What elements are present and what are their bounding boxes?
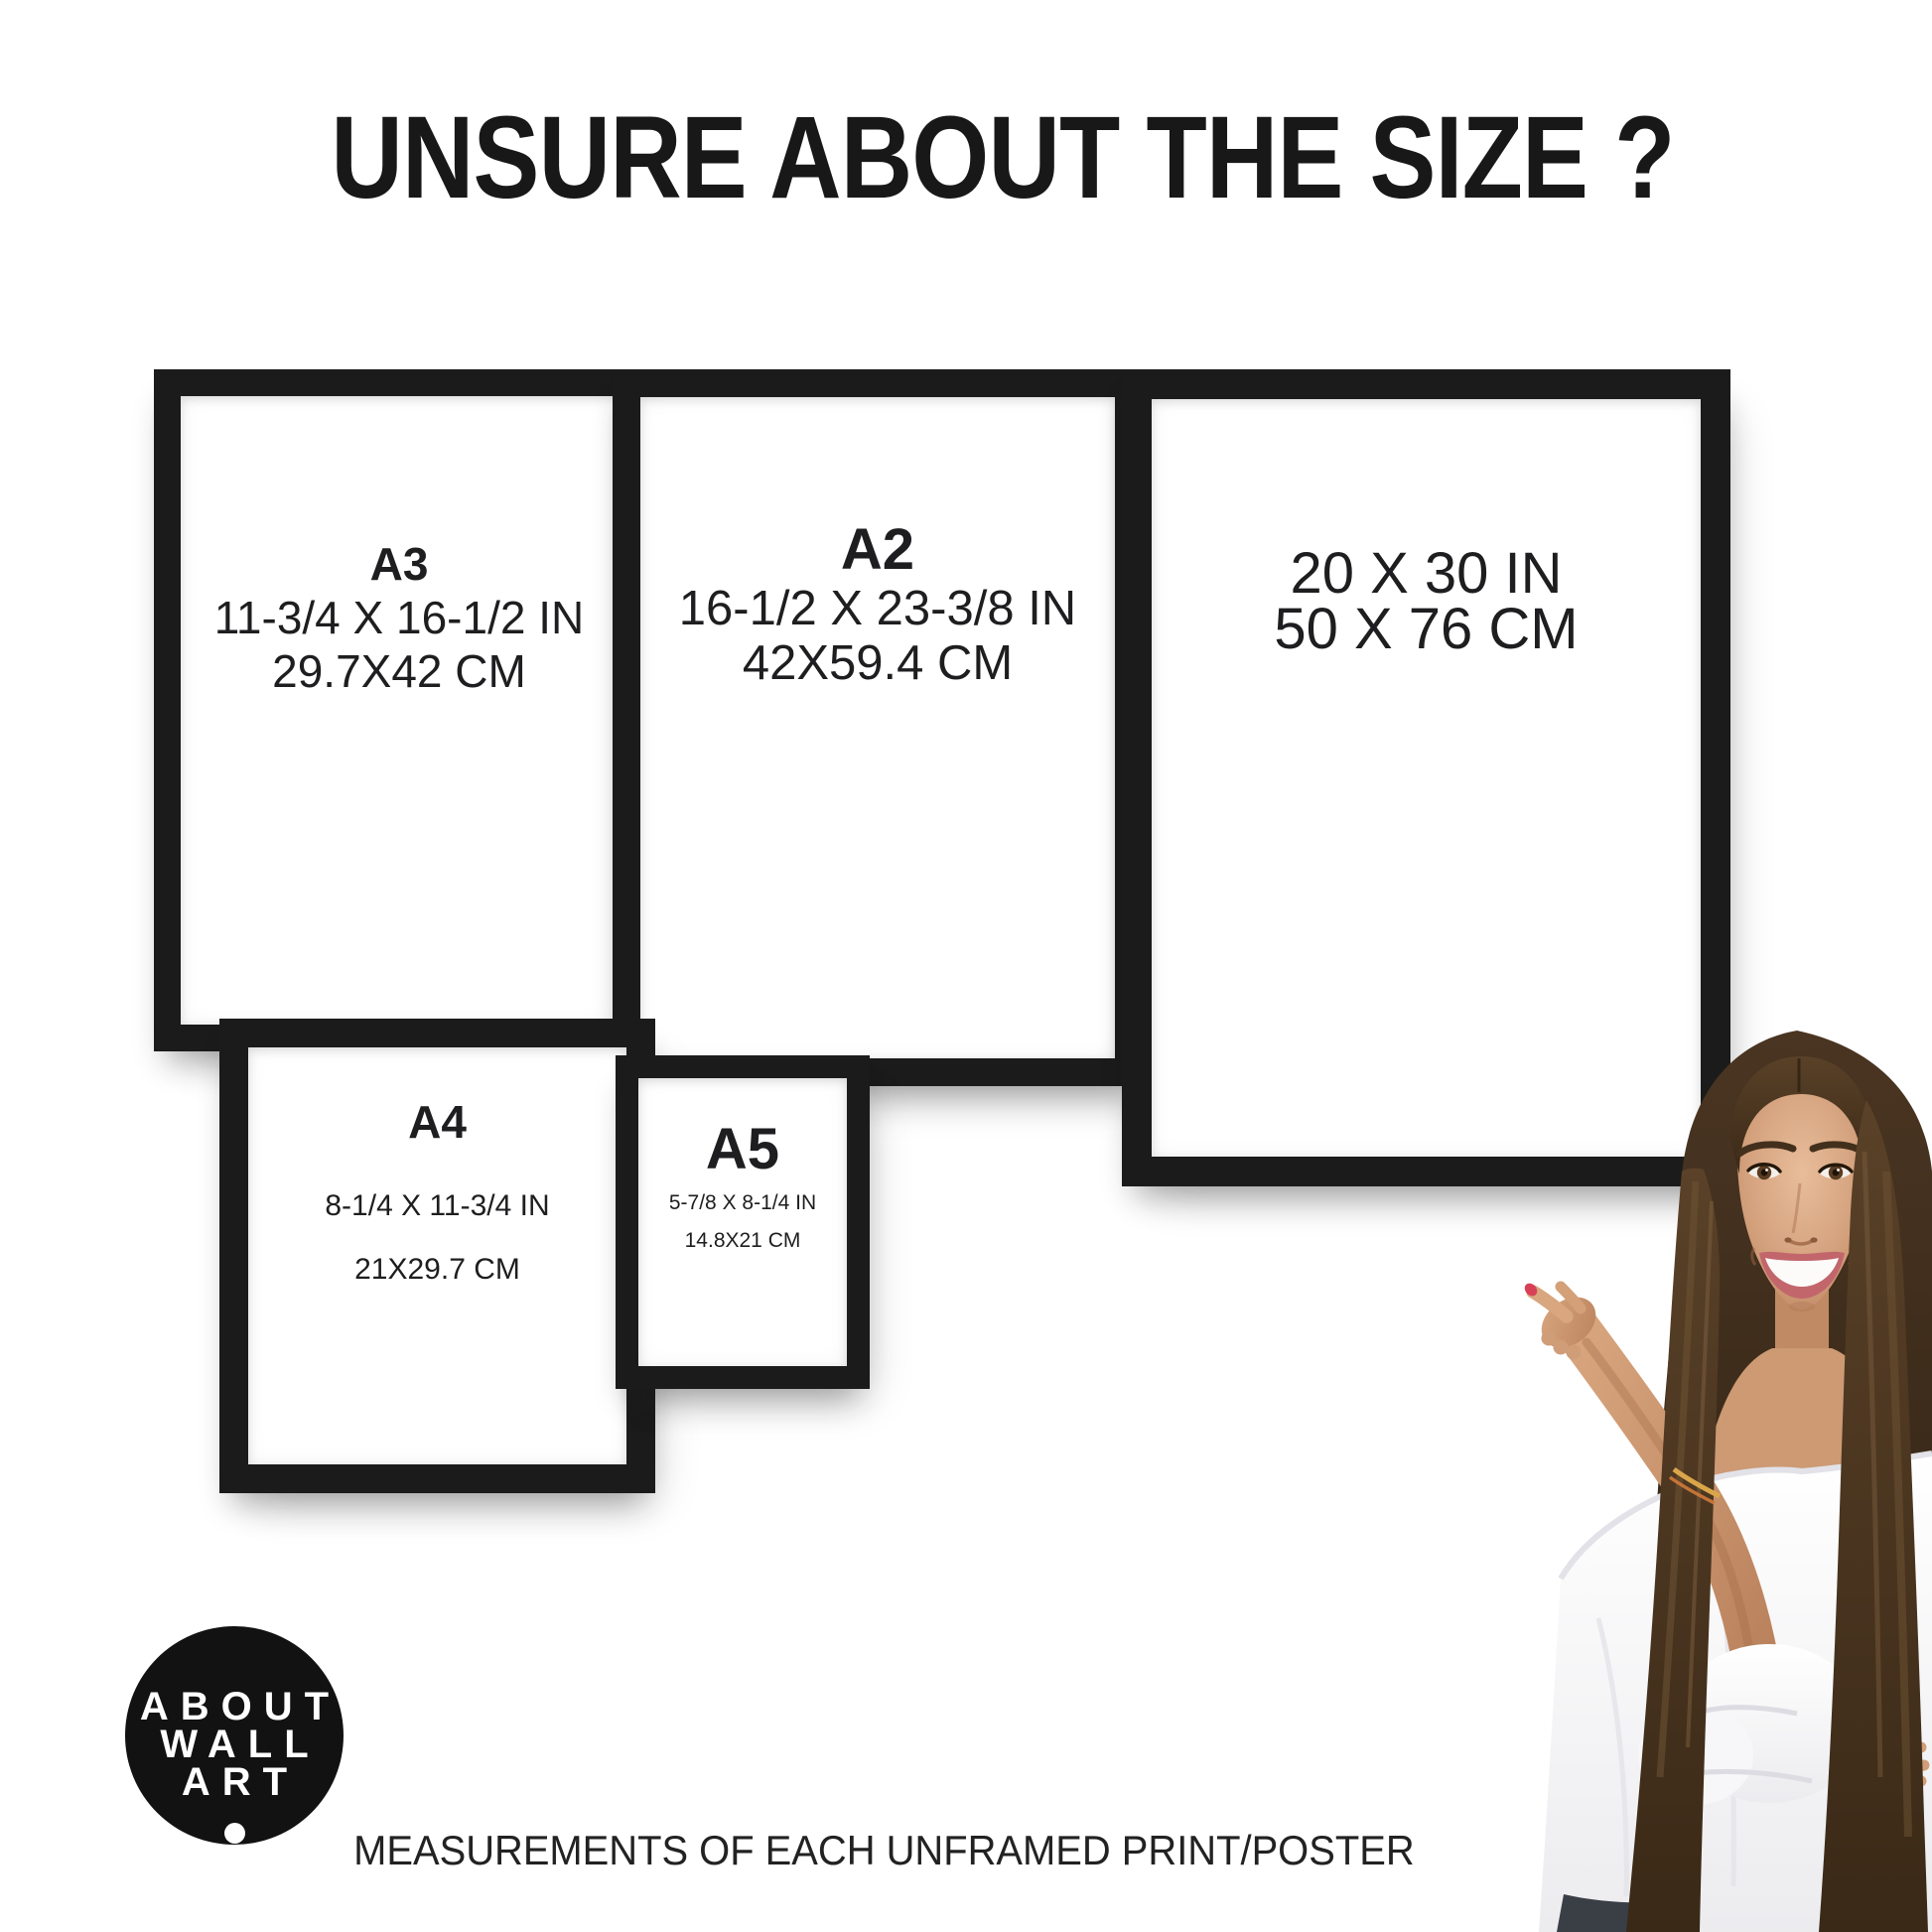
frame-20x30-cm: 50 X 76 CM — [1152, 602, 1701, 657]
logo-line-about: ABOUT — [137, 1688, 344, 1725]
frame-a5-size-label: A5 — [638, 1120, 847, 1179]
frame-a2-size-label: A2 — [640, 518, 1115, 582]
frame-a3-size-label: A3 — [181, 537, 618, 591]
frame-a4-print: A4 8-1/4 X 11-3/4 IN 21X29.7 CM — [248, 1047, 626, 1464]
footer-caption: MEASUREMENTS OF EACH UNFRAMED PRINT/POST… — [353, 1827, 1415, 1874]
frame-a3-cm: 29.7X42 CM — [181, 644, 618, 698]
logo-line-wall: WALL — [137, 1725, 344, 1763]
frame-a4-size-label: A4 — [248, 1097, 626, 1147]
brand-logo: ABOUT WALL ART — [125, 1626, 344, 1845]
frame-a2-print: A2 16-1/2 X 23-3/8 IN 42X59.4 CM — [640, 397, 1115, 1058]
frame-a2-inches: 16-1/2 X 23-3/8 IN — [640, 582, 1115, 636]
frame-a5-print: A5 5-7/8 X 8-1/4 IN 14.8X21 CM — [638, 1078, 847, 1366]
frame-a4-cm: 21X29.7 CM — [248, 1252, 626, 1288]
brand-logo-text: ABOUT WALL ART — [125, 1626, 344, 1801]
frame-a3: A3 11-3/4 X 16-1/2 IN 29.7X42 CM — [154, 369, 644, 1051]
frame-a2: A2 16-1/2 X 23-3/8 IN 42X59.4 CM — [613, 369, 1143, 1086]
frame-a4-inches: 8-1/4 X 11-3/4 IN — [248, 1188, 626, 1224]
model-photo — [1469, 1023, 1932, 1932]
frame-a2-cm: 42X59.4 CM — [640, 636, 1115, 691]
page-title: UNSURE ABOUT THE SIZE ? — [331, 97, 1674, 220]
frame-a5-cm: 14.8X21 CM — [638, 1229, 847, 1253]
frame-a3-inches: 11-3/4 X 16-1/2 IN — [181, 591, 618, 644]
page-title-row: UNSURE ABOUT THE SIZE ? — [40, 97, 1932, 220]
frame-20x30-inches: 20 X 30 IN — [1152, 546, 1701, 602]
size-guide-poster: UNSURE ABOUT THE SIZE ? A3 11-3/4 X 16-1… — [0, 0, 1932, 1932]
frame-a5-inches: 5-7/8 X 8-1/4 IN — [638, 1191, 847, 1215]
logo-line-art: ART — [137, 1763, 344, 1801]
frame-a5: A5 5-7/8 X 8-1/4 IN 14.8X21 CM — [616, 1055, 870, 1389]
frame-a4: A4 8-1/4 X 11-3/4 IN 21X29.7 CM — [219, 1019, 655, 1493]
frame-a3-print: A3 11-3/4 X 16-1/2 IN 29.7X42 CM — [181, 396, 618, 1025]
